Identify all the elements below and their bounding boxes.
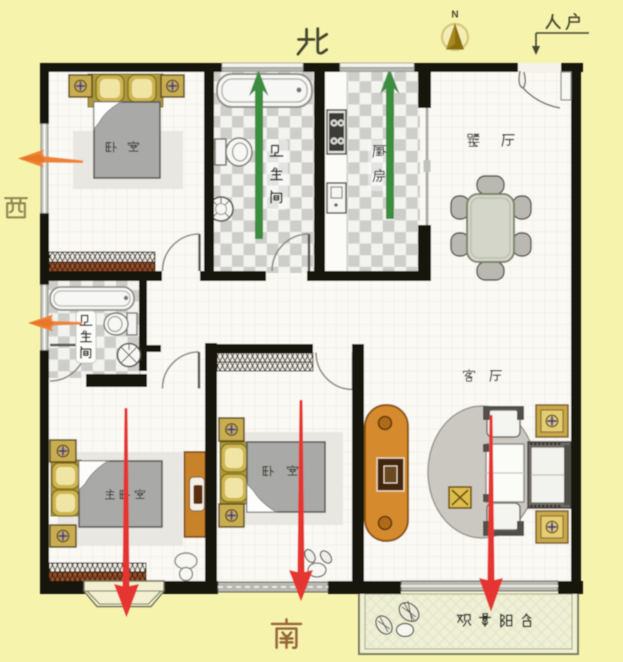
svg-text:N: N: [451, 10, 458, 21]
